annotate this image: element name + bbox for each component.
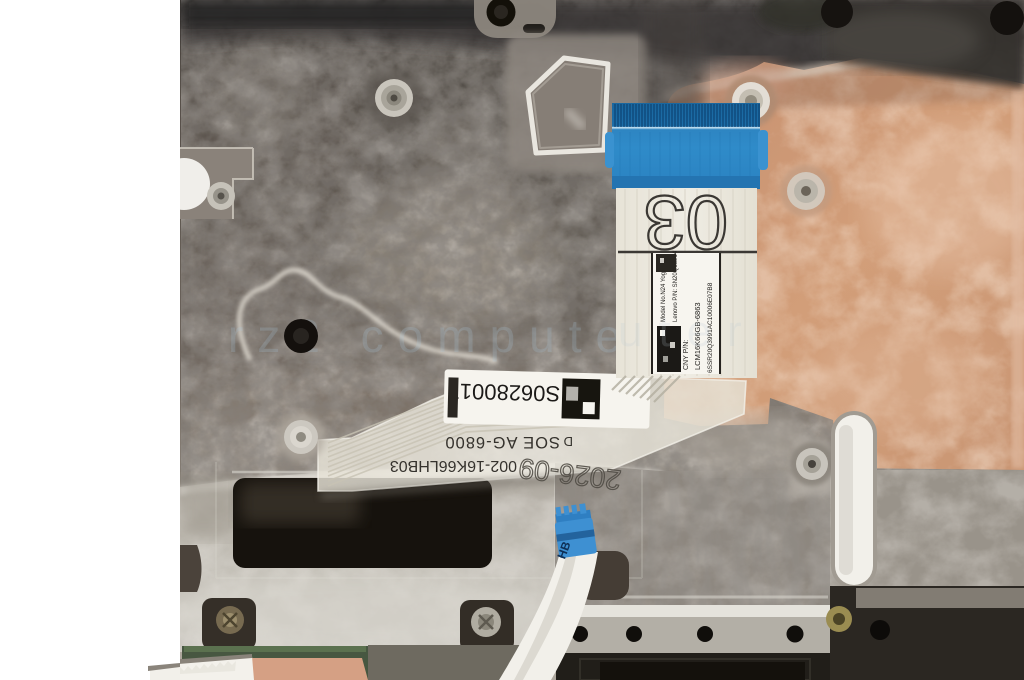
svg-text:D: D bbox=[564, 434, 573, 449]
svg-text:S06280017: S06280017 bbox=[447, 378, 560, 406]
svg-text:uter: uter bbox=[618, 307, 758, 356]
svg-text:SOE AG-6800: SOE AG-6800 bbox=[444, 433, 560, 451]
svg-text:002-16K66LHB03: 002-16K66LHB03 bbox=[390, 457, 517, 474]
